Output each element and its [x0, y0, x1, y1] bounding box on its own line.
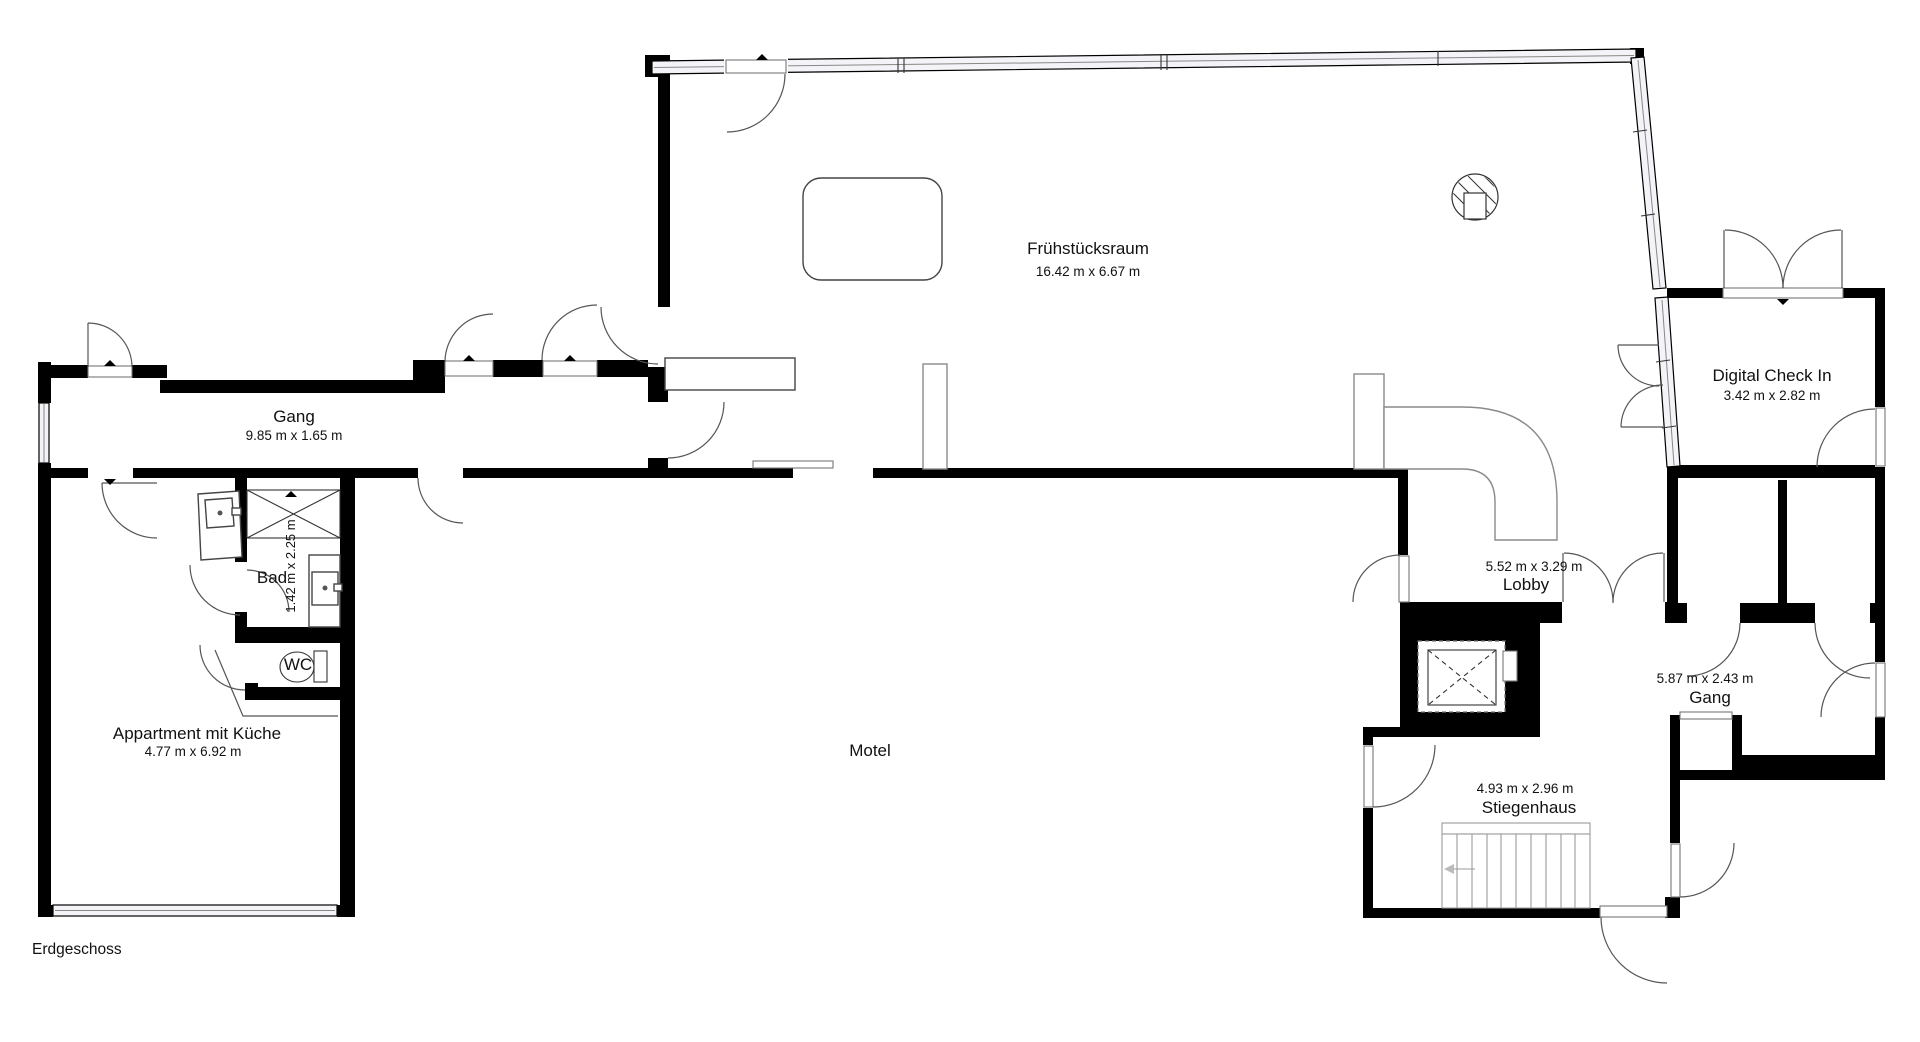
- room-dims-corridor-west: 9.85 m x 1.65 m: [246, 428, 343, 443]
- door-arc-checkin-north-left: [1725, 230, 1783, 288]
- door-arc-corridor-ext-3: [542, 305, 597, 360]
- breakfast-counter: [665, 358, 795, 390]
- room-label-breakfast: Frühstücksraum: [1027, 239, 1149, 258]
- walls: [38, 48, 1885, 918]
- door-arc-breakfast-southwest: [668, 402, 724, 458]
- kitchen-counter: [198, 491, 242, 560]
- doors: [88, 74, 1885, 983]
- room-dims-lobby: 5.52 m x 3.29 m: [1486, 559, 1583, 574]
- door-arc-staircase-south: [1601, 917, 1667, 983]
- door-arc-checkin-west-lower: [1621, 385, 1663, 427]
- building-label: Motel: [849, 741, 891, 760]
- door-markers: [104, 54, 1789, 636]
- floor-plan-svg: Frühstücksraum 16.42 m x 6.67 m Gang 9.8…: [0, 0, 1920, 1042]
- room-label-lobby: Lobby: [1503, 575, 1550, 594]
- stairs: [1442, 823, 1590, 908]
- pillar-center: [923, 364, 947, 469]
- door-arc-room-right: [1815, 623, 1870, 678]
- door-arc-bath-outer: [190, 565, 240, 615]
- door-arc-checkin-north-right: [1783, 230, 1841, 288]
- door-arc-breakfast-west: [601, 307, 658, 364]
- floor-plan-page: Frühstücksraum 16.42 m x 6.67 m Gang 9.8…: [0, 0, 1920, 1042]
- room-dims-checkin: 3.42 m x 2.82 m: [1724, 388, 1821, 403]
- room-label-staircase: Stiegenhaus: [1482, 798, 1577, 817]
- door-arc-checkin-east: [1817, 409, 1875, 467]
- pillar-lobby: [1354, 374, 1384, 469]
- breakfast-table: [803, 178, 942, 280]
- room-label-corridor-west: Gang: [273, 407, 315, 426]
- room-label-apartment: Appartment mit Küche: [113, 724, 281, 743]
- room-label-checkin: Digital Check In: [1712, 366, 1831, 385]
- door-arc-corridor-ext-2: [445, 314, 493, 362]
- door-arc-staircase-east: [1680, 843, 1734, 897]
- room-label-corridor-east: Gang: [1689, 688, 1731, 707]
- room-dims-bathroom: 1.42 m x 2.25 m: [283, 519, 298, 612]
- door-arc-apartment-entry: [102, 483, 157, 538]
- closet-door-band: [1680, 712, 1732, 719]
- room-dims-breakfast: 16.42 m x 6.67 m: [1036, 264, 1140, 279]
- bathroom-sink: [309, 555, 342, 627]
- curved-wall: [1384, 407, 1557, 540]
- sliding-door-panel: [753, 461, 833, 468]
- fixtures: [198, 148, 1590, 908]
- door-arc-corridor-east: [1821, 663, 1875, 717]
- door-arc-lobby-south-right: [1613, 553, 1663, 603]
- room-dims-apartment: 4.77 m x 6.92 m: [145, 744, 242, 759]
- floor-label: Erdgeschoss: [32, 941, 122, 958]
- door-arc-lobby-west: [1353, 555, 1400, 602]
- door-arc-staircase-nw: [1373, 745, 1435, 807]
- door-arc-room-left: [1687, 623, 1740, 676]
- door-arc-checkin-west-upper: [1618, 345, 1659, 386]
- structural-column: [1442, 148, 1518, 228]
- facade-door-leaf: [726, 60, 786, 73]
- door-arc-junction-south: [418, 478, 463, 523]
- apartment-niche-wall: [215, 650, 338, 716]
- room-dims-staircase: 4.93 m x 2.96 m: [1477, 781, 1574, 796]
- room-label-wc: WC: [284, 655, 312, 674]
- door-arc-facade: [727, 74, 785, 132]
- room-dims-corridor-east: 5.87 m x 2.43 m: [1657, 671, 1754, 686]
- elevator: [1418, 641, 1517, 712]
